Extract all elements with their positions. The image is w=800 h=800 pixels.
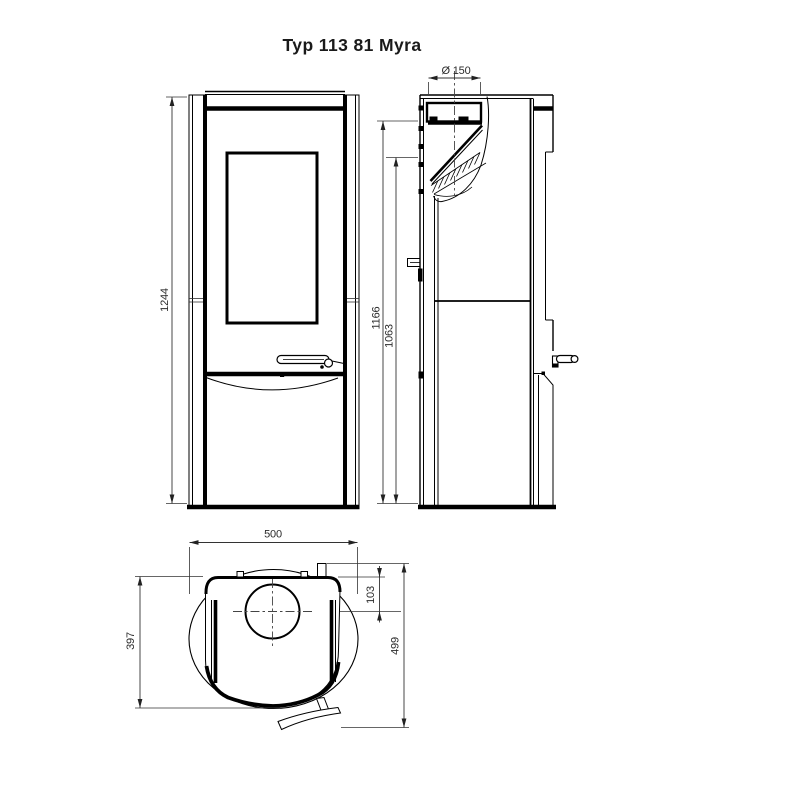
top-view [189, 564, 358, 730]
front-door-divider [205, 373, 345, 390]
drawing-title: Typ 113 81 Myra [283, 35, 422, 55]
front-top-plate [205, 92, 345, 109]
side-ash-handle [553, 356, 578, 368]
dim-label-flue-center-height: 1063 [384, 324, 396, 348]
side-front-panel [531, 95, 554, 505]
dim-label-flue-top-height: 1166 [371, 306, 383, 329]
dim-label-plate-depth: 397 [125, 632, 137, 650]
front-view [187, 92, 360, 508]
front-side-panel-right [343, 95, 360, 505]
front-side-panel-left [189, 95, 208, 505]
side-top-plate [420, 95, 553, 99]
drawing-page: Typ 113 81 Myra [0, 0, 800, 800]
side-back-panel [408, 95, 439, 505]
dim-label-flue-diameter: Ø 150 [442, 65, 471, 77]
technical-drawing: Typ 113 81 Myra [0, 0, 800, 800]
dim-label-overall-width: 500 [264, 529, 282, 541]
dim-label-overall-height: 1244 [159, 288, 171, 312]
front-door-window [227, 153, 317, 323]
dim-label-flue-offset: 103 [365, 586, 377, 604]
side-view [408, 71, 578, 507]
dim-label-overall-depth: 499 [390, 637, 402, 655]
front-door-handle [277, 356, 344, 369]
dim-overall-height: 1244 [159, 97, 187, 504]
dim-flue-top-height: 1166 [371, 121, 419, 504]
